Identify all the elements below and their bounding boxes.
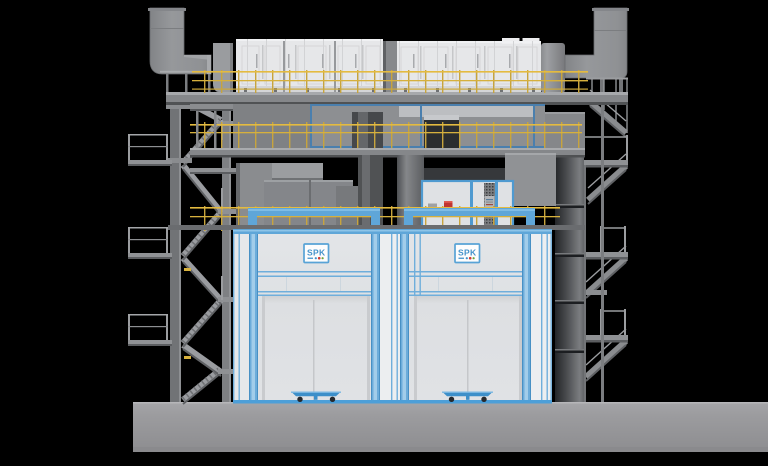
svg-text:SPK: SPK	[307, 248, 326, 258]
svg-text:SPK: SPK	[458, 248, 477, 258]
